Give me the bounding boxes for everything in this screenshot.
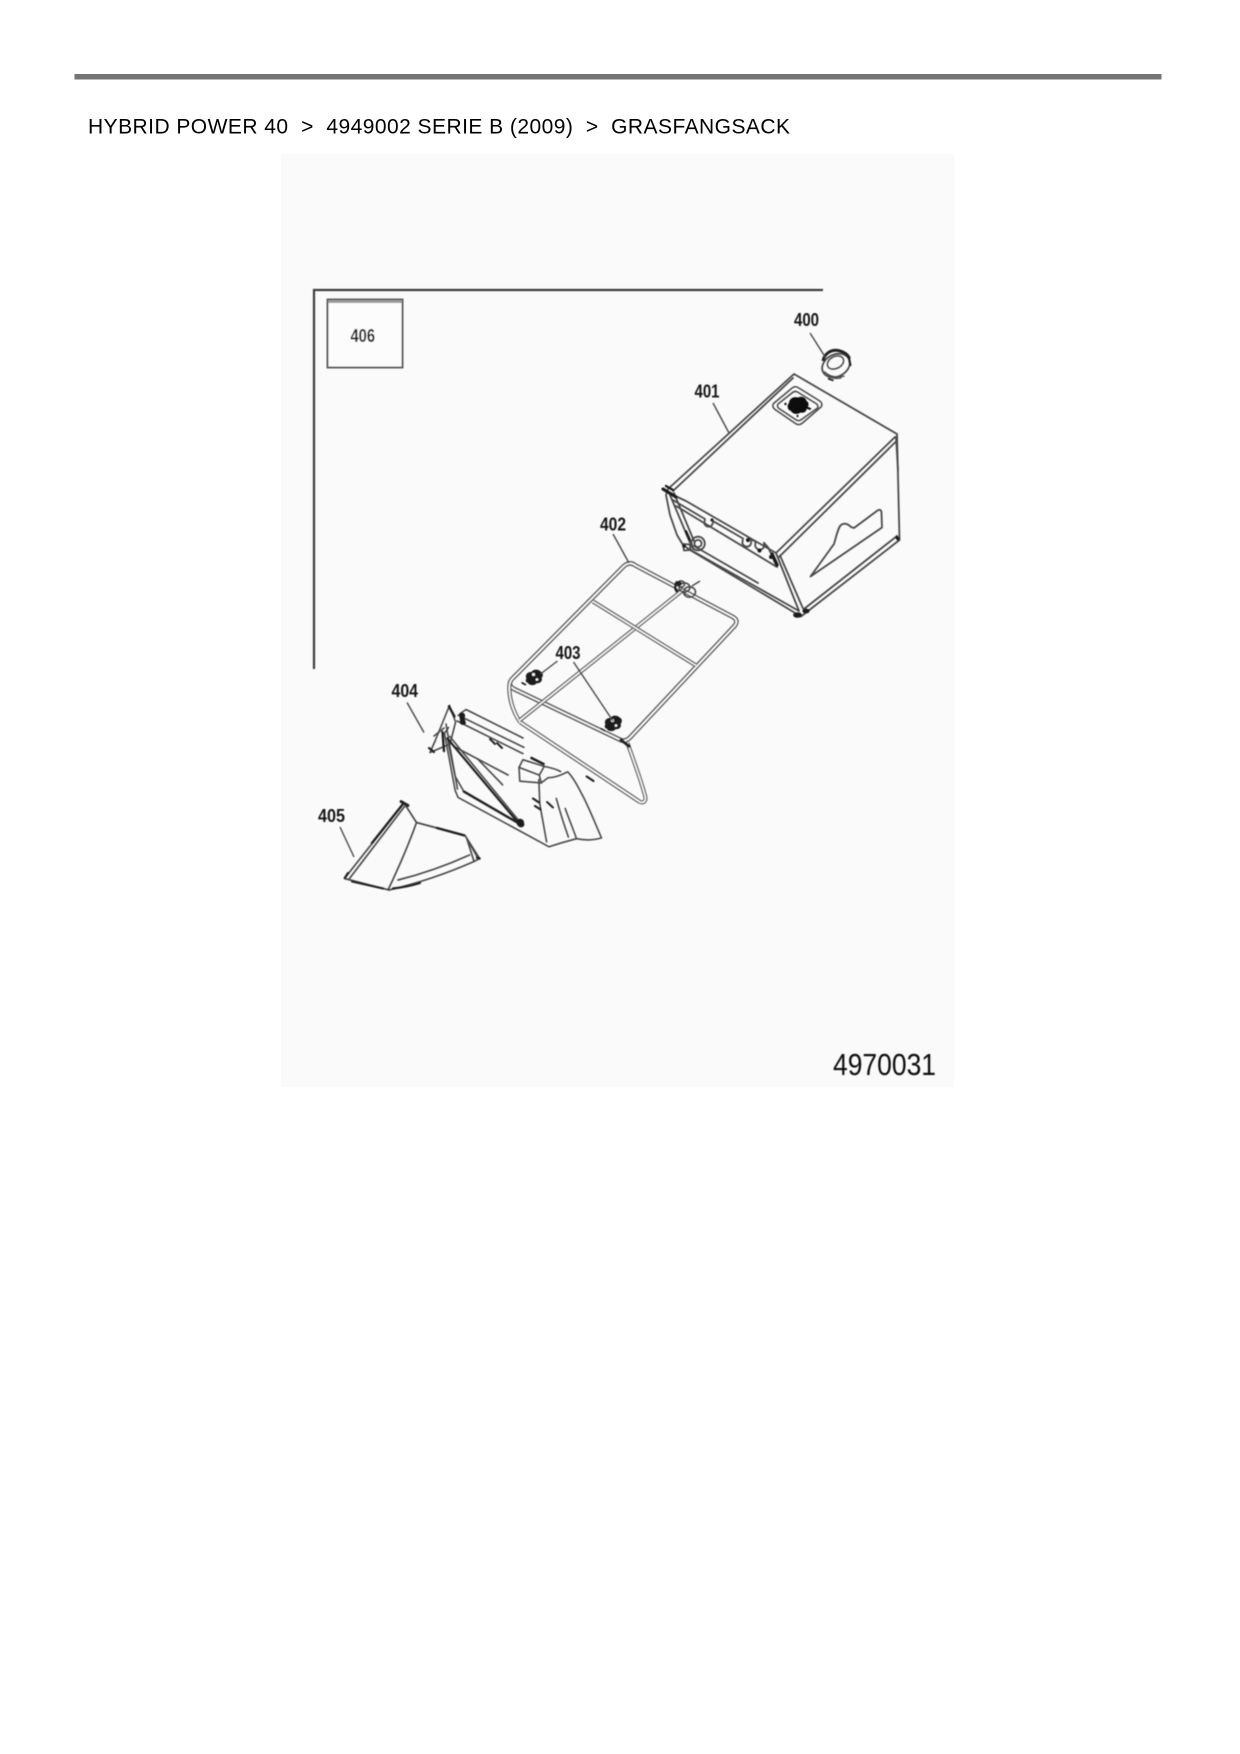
svg-text:4970031: 4970031 — [833, 1047, 936, 1082]
svg-text:404: 404 — [392, 681, 419, 701]
svg-text:401: 401 — [695, 382, 720, 402]
svg-text:405: 405 — [318, 806, 345, 826]
svg-text:HYBRID POWER 40 > 4949002 SE: HYBRID POWER 40 > 4949002 SERIE B (2009)… — [88, 116, 790, 139]
svg-text:400: 400 — [794, 310, 819, 330]
svg-text:403: 403 — [556, 643, 581, 663]
svg-text:402: 402 — [600, 515, 626, 535]
svg-text:406: 406 — [351, 326, 376, 346]
